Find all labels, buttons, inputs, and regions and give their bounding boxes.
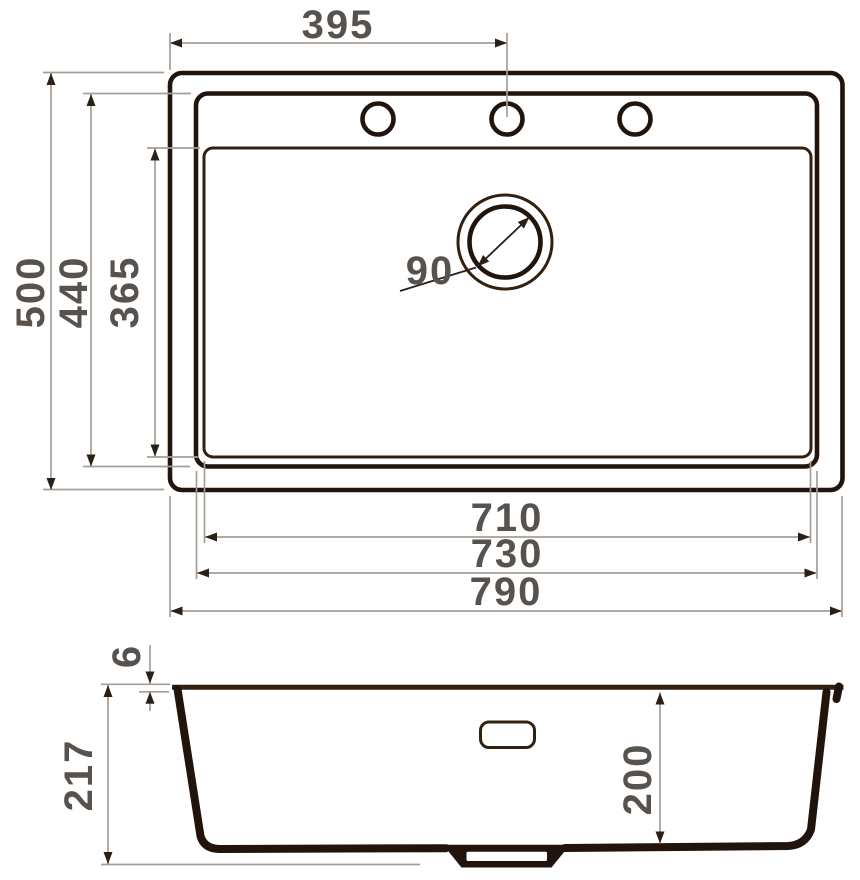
faucet-hole-right	[620, 104, 651, 135]
section-dimensions: 6 217 200	[57, 644, 660, 865]
dim-label-395: 395	[302, 3, 375, 47]
dim-label-217: 217	[57, 739, 101, 812]
dim-label-440: 440	[52, 256, 96, 329]
dim-label-365: 365	[103, 256, 147, 329]
faucet-hole-left	[363, 104, 394, 135]
drain-fitting-slot	[467, 852, 548, 861]
dim-label-500: 500	[9, 256, 53, 329]
dim-label-90: 90	[406, 249, 455, 293]
rim-right-cap	[837, 687, 840, 700]
sink-technical-drawing: 395 500 440 365 90 710 730 790 6 217 200	[0, 0, 860, 880]
left-wall-and-bottom	[178, 689, 447, 849]
drain-outer-circle	[458, 195, 552, 289]
section-view	[172, 687, 844, 868]
bottom-and-right-wall	[565, 692, 827, 848]
drain-inner-circle	[470, 207, 541, 278]
dim-label-200: 200	[616, 743, 660, 816]
plan-view	[170, 73, 843, 490]
overflow-hole	[481, 722, 535, 748]
drawing-canvas: 395 500 440 365 90 710 730 790 6 217 200	[0, 0, 860, 880]
dim-label-790: 790	[470, 570, 543, 614]
drain-diameter-arrow	[478, 217, 530, 267]
dim-label-6: 6	[105, 644, 149, 668]
